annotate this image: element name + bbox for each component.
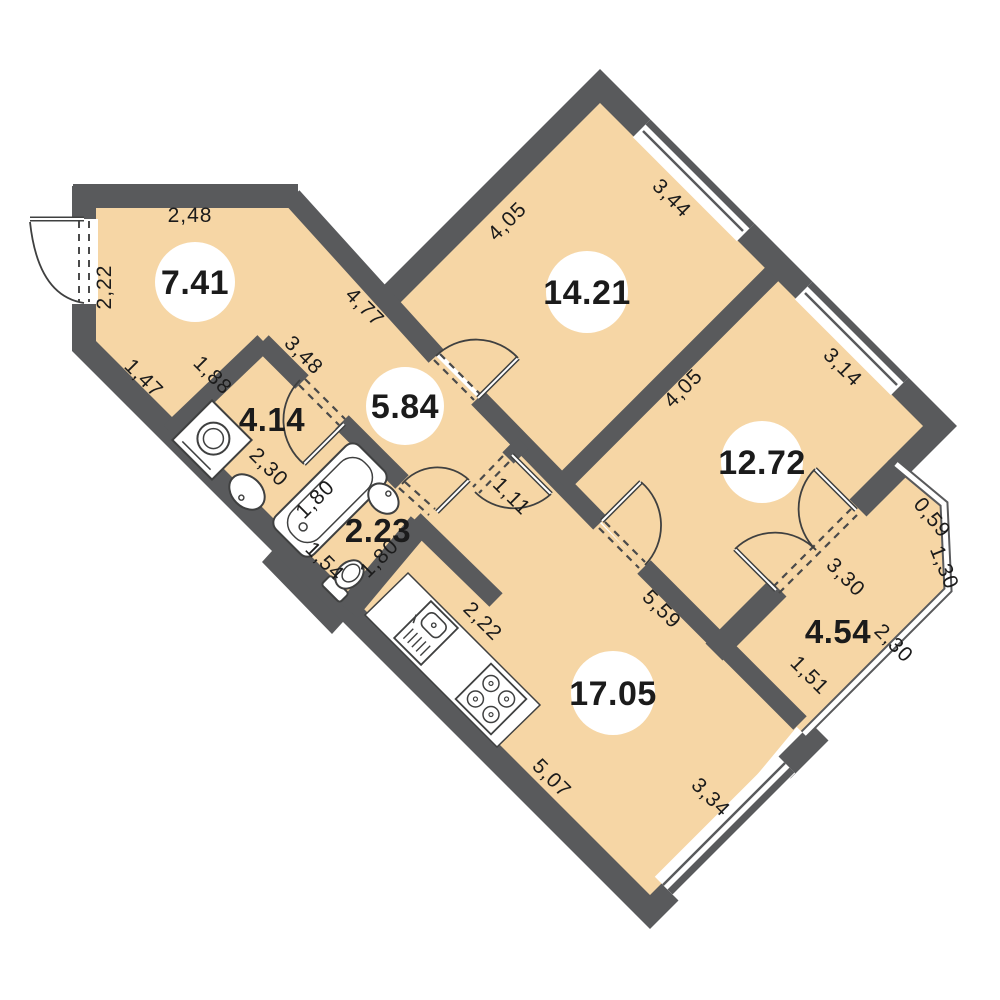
room-area-kitchen-living: 17.05	[569, 675, 657, 713]
room-label-hallway: 5.84	[366, 367, 444, 445]
room-area-bedroom-1: 14.21	[543, 274, 631, 312]
floor-plan-page: 7.41 14.21 12.72 5.84 17.05 4.14 2.23 4.…	[0, 0, 1000, 1000]
dim-label: 2,22	[93, 265, 116, 310]
room-area-bedroom-2: 12.72	[718, 444, 806, 482]
floor-plan-drawing: 7.41 14.21 12.72 5.84 17.05 4.14 2.23 4.…	[0, 0, 1000, 1000]
room-area-hallway: 5.84	[371, 388, 439, 426]
room-area-bathroom: 4.14	[239, 401, 305, 438]
room-label-entrance-hall: 7.41	[155, 242, 235, 322]
room-area-entrance-hall: 7.41	[161, 264, 229, 302]
entrance-door	[30, 219, 98, 304]
room-area-balcony: 4.54	[805, 613, 871, 650]
dim-label: 2,48	[168, 204, 213, 227]
